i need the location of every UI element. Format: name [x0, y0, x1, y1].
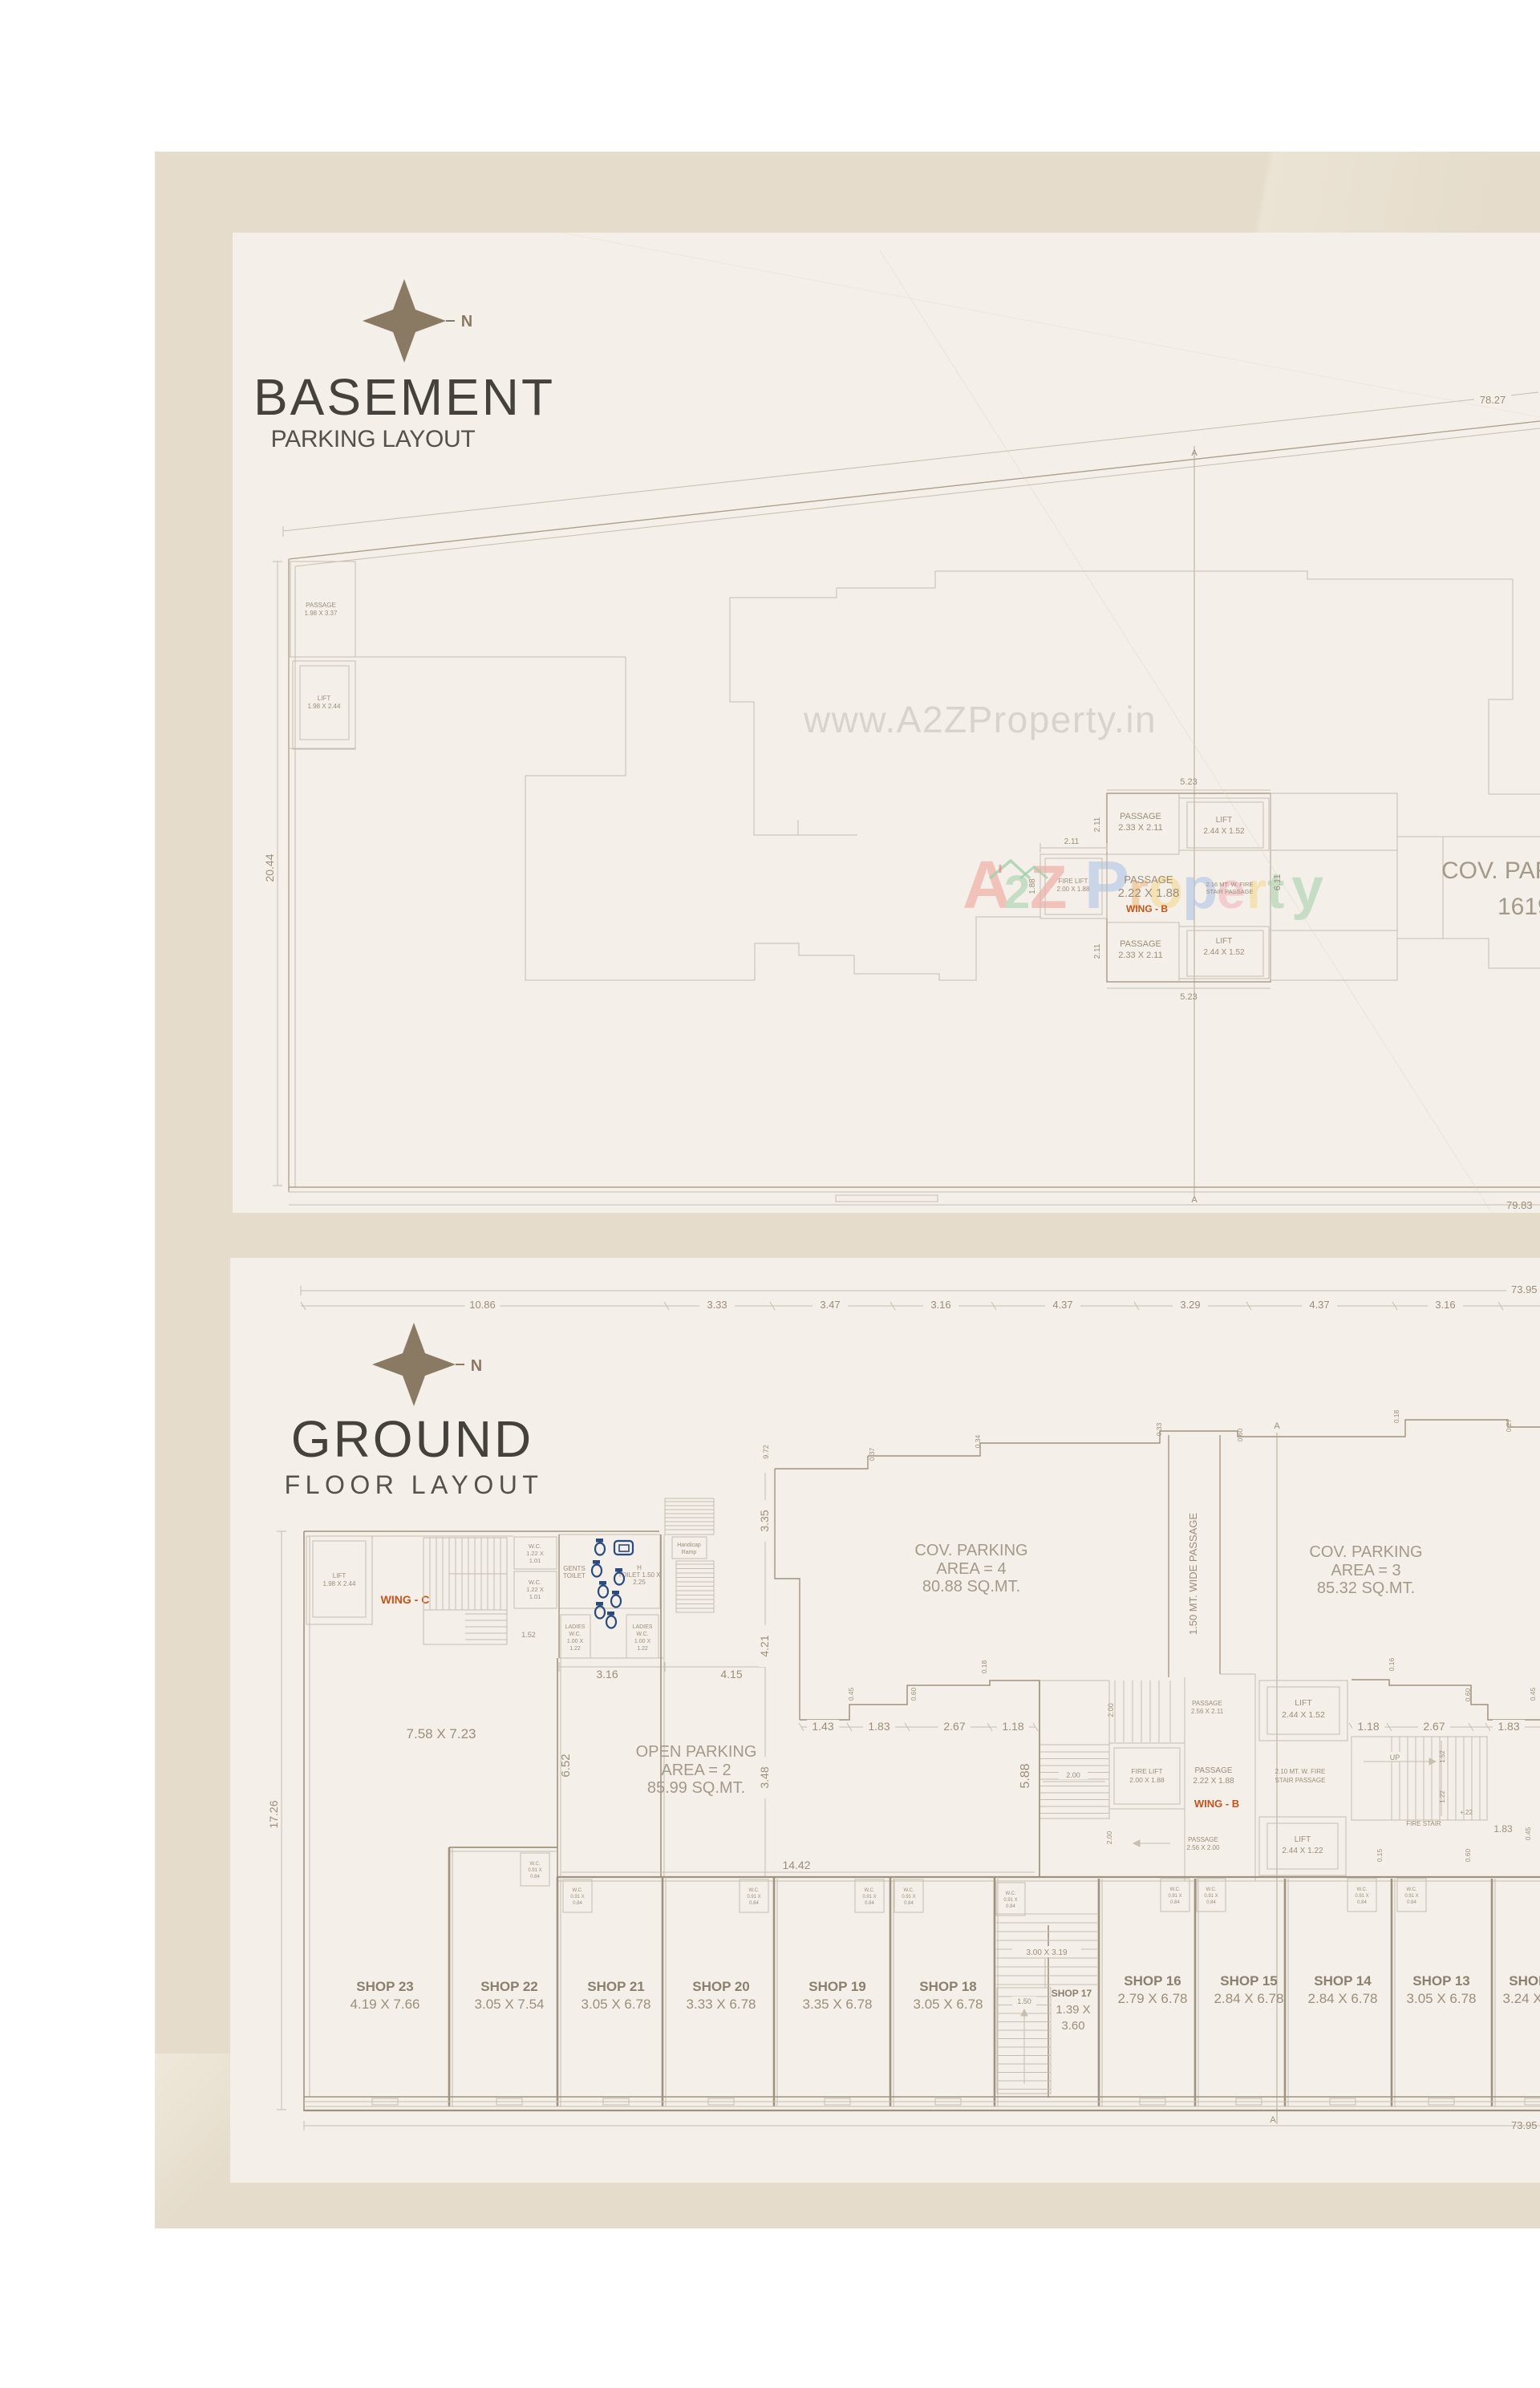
svg-text:1.18: 1.18 — [1002, 1720, 1023, 1733]
svg-text:2.84 X 6.78: 2.84 X 6.78 — [1214, 1991, 1284, 2006]
svg-text:1.98 X 2.44: 1.98 X 2.44 — [323, 1580, 356, 1587]
svg-text:2.00 X 1.88: 2.00 X 1.88 — [1129, 1776, 1165, 1784]
svg-text:2.22 X 1.88: 2.22 X 1.88 — [1118, 886, 1180, 900]
svg-text:UP: UP — [1390, 1753, 1400, 1762]
svg-text:0.91 X: 0.91 X — [1355, 1894, 1368, 1899]
svg-text:0.60: 0.60 — [1464, 1848, 1472, 1862]
svg-text:80.88 SQ.MT.: 80.88 SQ.MT. — [922, 1578, 1020, 1595]
svg-text:2.25: 2.25 — [633, 1579, 646, 1586]
svg-text:N: N — [461, 313, 472, 330]
svg-text:0.91 X: 0.91 X — [902, 1895, 915, 1899]
svg-text:3.35: 3.35 — [758, 1510, 771, 1531]
svg-text:LIFT: LIFT — [1216, 816, 1233, 825]
svg-text:W.C.: W.C. — [1170, 1887, 1181, 1892]
svg-text:3.29: 3.29 — [1180, 1299, 1200, 1311]
svg-text:FIRE LIFT: FIRE LIFT — [1059, 878, 1088, 885]
svg-text:LIFT: LIFT — [333, 1572, 346, 1579]
svg-text:WING - B: WING - B — [1194, 1798, 1239, 1810]
svg-text:2.44 X 1.52: 2.44 X 1.52 — [1203, 827, 1245, 836]
svg-text:0.84: 0.84 — [573, 1901, 582, 1906]
svg-text:STAIR PASSAGE: STAIR PASSAGE — [1275, 1777, 1326, 1784]
svg-text:3.33: 3.33 — [707, 1299, 727, 1311]
svg-text:1.43: 1.43 — [812, 1720, 833, 1733]
svg-text:A: A — [1270, 2115, 1276, 2125]
svg-text:1.22: 1.22 — [637, 1646, 648, 1652]
svg-text:73.95: 73.95 — [1511, 1283, 1538, 1295]
svg-text:0.84: 0.84 — [904, 1901, 914, 1906]
svg-text:W.C.: W.C. — [865, 1888, 875, 1893]
svg-text:2.00 X 1.88: 2.00 X 1.88 — [1057, 886, 1090, 893]
svg-text:0.91 X: 0.91 X — [862, 1895, 876, 1899]
svg-text:SHOP 12: SHOP 12 — [1509, 1973, 1540, 1989]
svg-text:SHOP 18: SHOP 18 — [919, 1979, 977, 1994]
svg-text:1.83: 1.83 — [1497, 1720, 1519, 1733]
svg-text:1.01: 1.01 — [529, 1557, 541, 1564]
svg-text:W.C.: W.C. — [529, 1543, 541, 1550]
svg-text:0.18: 0.18 — [1392, 1409, 1400, 1423]
svg-text:5.88: 5.88 — [1019, 1763, 1032, 1788]
svg-text:2.11: 2.11 — [1093, 943, 1102, 959]
svg-text:1.98 X 2.44: 1.98 X 2.44 — [308, 703, 341, 710]
svg-text:1.83: 1.83 — [868, 1720, 890, 1733]
svg-text:0.60: 0.60 — [910, 1687, 918, 1701]
svg-text:LADIES: LADIES — [633, 1624, 653, 1630]
svg-text:0.84: 0.84 — [1407, 1900, 1416, 1905]
svg-text:N: N — [471, 1357, 482, 1375]
svg-text:SHOP 21: SHOP 21 — [587, 1979, 645, 1994]
svg-text:2.56 X 2.00: 2.56 X 2.00 — [1187, 1844, 1220, 1851]
svg-text:5.23: 5.23 — [1180, 777, 1197, 787]
svg-text:4.21: 4.21 — [758, 1635, 771, 1656]
svg-text:W.C.: W.C. — [1206, 1887, 1217, 1892]
svg-text:3.33 X 6.78: 3.33 X 6.78 — [687, 1997, 756, 2012]
svg-text:4.37: 4.37 — [1052, 1299, 1072, 1311]
svg-text:PARKING LAYOUT: PARKING LAYOUT — [271, 426, 476, 452]
svg-text:AREA = 2: AREA = 2 — [661, 1762, 731, 1779]
svg-text:10.86: 10.86 — [469, 1299, 496, 1311]
svg-text:1.01: 1.01 — [529, 1593, 541, 1600]
svg-text:2.00: 2.00 — [1066, 1771, 1080, 1779]
svg-text:LADIES: LADIES — [565, 1624, 586, 1630]
svg-text:3.00 X 3.19: 3.00 X 3.19 — [1026, 1948, 1068, 1957]
svg-text:1.52: 1.52 — [521, 1631, 536, 1639]
svg-text:2.67: 2.67 — [943, 1720, 965, 1733]
svg-text:+.22: +.22 — [1460, 1809, 1473, 1816]
svg-text:W.C.: W.C. — [573, 1888, 583, 1893]
svg-text:W.C.: W.C. — [1357, 1887, 1368, 1892]
svg-text:SHOP 20: SHOP 20 — [692, 1979, 750, 1994]
svg-text:2.22 X 1.88: 2.22 X 1.88 — [1193, 1777, 1234, 1786]
svg-text:2.00: 2.00 — [1105, 1831, 1113, 1844]
svg-text:73.95: 73.95 — [1511, 2119, 1538, 2131]
svg-text:W.C.: W.C. — [749, 1888, 760, 1893]
svg-text:OPEN PARKING: OPEN PARKING — [636, 1743, 757, 1761]
svg-text:0.84: 0.84 — [530, 1875, 540, 1879]
svg-text:SHOP 13: SHOP 13 — [1412, 1973, 1470, 1989]
svg-text:0.15: 0.15 — [1376, 1848, 1384, 1862]
svg-text:SHOP 23: SHOP 23 — [356, 1979, 414, 1994]
svg-text:4.15: 4.15 — [720, 1668, 742, 1681]
svg-text:1.00 X: 1.00 X — [567, 1639, 584, 1644]
svg-text:COV. PARKING: COV. PARKING — [1441, 857, 1540, 884]
svg-text:LIFT: LIFT — [1295, 1698, 1312, 1708]
svg-text:TOILET: TOILET — [563, 1572, 586, 1579]
svg-text:7.58 X 7.23: 7.58 X 7.23 — [407, 1726, 476, 1741]
svg-text:5.23: 5.23 — [1180, 992, 1197, 1002]
svg-text:0.84: 0.84 — [1006, 1904, 1015, 1909]
svg-text:GROUND: GROUND — [291, 1410, 533, 1468]
svg-text:3.60: 3.60 — [1061, 2019, 1084, 2033]
svg-text:STAIR PASSAGE: STAIR PASSAGE — [1206, 888, 1254, 895]
svg-text:COV. PARKING: COV. PARKING — [1309, 1543, 1422, 1561]
svg-text:2.44 X 1.52: 2.44 X 1.52 — [1282, 1710, 1325, 1720]
svg-text:17.26: 17.26 — [267, 1800, 280, 1828]
svg-text:0.45: 0.45 — [1524, 1826, 1532, 1840]
svg-text:FLOOR LAYOUT: FLOOR LAYOUT — [285, 1470, 544, 1499]
svg-text:0.84: 0.84 — [749, 1901, 759, 1906]
svg-text:3.24 X 6.78: 3.24 X 6.78 — [1503, 1991, 1540, 2006]
svg-text:0.84: 0.84 — [865, 1901, 874, 1906]
svg-text:1.88: 1.88 — [1028, 878, 1037, 894]
svg-text:W.C.: W.C. — [530, 1862, 541, 1867]
svg-text:1.22 X: 1.22 X — [526, 1586, 544, 1593]
svg-text:AREA = 3: AREA = 3 — [1331, 1562, 1400, 1579]
svg-text:6.52: 6.52 — [559, 1753, 573, 1777]
svg-text:0.91 X: 0.91 X — [747, 1895, 760, 1899]
svg-text:PASSAGE: PASSAGE — [306, 602, 336, 609]
svg-text:SHOP 15: SHOP 15 — [1220, 1973, 1278, 1989]
svg-text:4.19 X 7.66: 4.19 X 7.66 — [351, 1997, 420, 2012]
svg-text:A: A — [1274, 1421, 1280, 1431]
svg-text:0.91 X: 0.91 X — [528, 1868, 541, 1873]
svg-text:1.22: 1.22 — [1439, 1790, 1446, 1803]
svg-text:Ramp: Ramp — [682, 1550, 697, 1555]
svg-text:2.84 X 6.78: 2.84 X 6.78 — [1308, 1991, 1378, 2006]
svg-text:2.11: 2.11 — [1093, 817, 1102, 832]
svg-text:1.18: 1.18 — [1357, 1720, 1379, 1733]
svg-text:0.91 X: 0.91 X — [1404, 1894, 1418, 1899]
svg-text:2.00: 2.00 — [1107, 1703, 1115, 1717]
svg-text:3.05 X 7.54: 3.05 X 7.54 — [475, 1997, 545, 2012]
svg-text:2.79 X 6.78: 2.79 X 6.78 — [1118, 1991, 1188, 2006]
svg-text:SHOP 17: SHOP 17 — [1052, 1988, 1092, 1999]
svg-text:14.42: 14.42 — [782, 1859, 810, 1871]
svg-text:0.91 X: 0.91 X — [1003, 1898, 1017, 1903]
svg-text:1.00 X: 1.00 X — [634, 1639, 651, 1644]
svg-text:0.91 X: 0.91 X — [1204, 1894, 1218, 1899]
svg-text:3.05 X 6.78: 3.05 X 6.78 — [582, 1997, 651, 2012]
svg-text:3.05 X 6.78: 3.05 X 6.78 — [914, 1997, 983, 2012]
svg-text:LIFT: LIFT — [318, 695, 331, 702]
svg-text:GENTS: GENTS — [563, 1565, 586, 1572]
svg-text:W.C.: W.C. — [636, 1632, 648, 1637]
svg-text:1.22: 1.22 — [569, 1646, 581, 1652]
svg-text:SHOP 19: SHOP 19 — [808, 1979, 866, 1994]
svg-text:W.C.: W.C. — [904, 1888, 914, 1893]
svg-text:LIFT: LIFT — [1295, 1835, 1311, 1844]
svg-text:0.84: 0.84 — [1357, 1900, 1367, 1905]
svg-text:W.C.: W.C. — [569, 1632, 581, 1637]
svg-text:0.84: 0.84 — [1170, 1900, 1180, 1905]
svg-text:78.27: 78.27 — [1480, 394, 1506, 406]
svg-text:0.45: 0.45 — [847, 1687, 855, 1701]
svg-text:1.83: 1.83 — [1493, 1823, 1513, 1835]
svg-text:Handicap: Handicap — [677, 1543, 701, 1548]
svg-text:20.44: 20.44 — [263, 853, 276, 882]
svg-text:2.44 X 1.52: 2.44 X 1.52 — [1203, 948, 1245, 957]
svg-text:3.35 X 6.78: 3.35 X 6.78 — [803, 1997, 873, 2012]
svg-text:2.33 X 2.11: 2.33 X 2.11 — [1118, 951, 1162, 960]
svg-text:1619.77 SQ.MT.: 1619.77 SQ.MT. — [1497, 894, 1540, 920]
svg-text:2.44 X 1.22: 2.44 X 1.22 — [1282, 1847, 1323, 1855]
svg-text:W.C.: W.C. — [1006, 1891, 1016, 1896]
svg-text:0.16: 0.16 — [1388, 1657, 1396, 1671]
svg-text:9.72: 9.72 — [762, 1445, 770, 1459]
svg-text:PASSAGE: PASSAGE — [1120, 939, 1161, 949]
svg-text:0.91 X: 0.91 X — [1168, 1894, 1181, 1899]
svg-text:3.16: 3.16 — [596, 1668, 618, 1681]
svg-text:LIFT: LIFT — [1216, 937, 1233, 946]
svg-text:SHOP 16: SHOP 16 — [1124, 1973, 1181, 1989]
svg-text:0.27: 0.27 — [1505, 1418, 1513, 1432]
svg-text:79.83: 79.83 — [1506, 1199, 1533, 1211]
svg-text:W.C.: W.C. — [529, 1579, 541, 1586]
svg-text:2.67: 2.67 — [1423, 1720, 1445, 1733]
svg-text:0.60: 0.60 — [1464, 1688, 1472, 1701]
svg-text:2.10 MT. W. FIRE: 2.10 MT. W. FIRE — [1275, 1768, 1326, 1775]
svg-text:3.16: 3.16 — [1435, 1299, 1455, 1311]
svg-text:0.37: 0.37 — [868, 1447, 876, 1461]
svg-text:SHOP 22: SHOP 22 — [480, 1979, 538, 1994]
svg-text:2.11: 2.11 — [1064, 837, 1080, 846]
svg-text:85.32 SQ.MT.: 85.32 SQ.MT. — [1317, 1579, 1415, 1597]
svg-text:1.22 X: 1.22 X — [526, 1550, 544, 1557]
svg-text:3.05 X 6.78: 3.05 X 6.78 — [1407, 1991, 1477, 2006]
svg-text:3.47: 3.47 — [820, 1299, 840, 1311]
svg-text:PASSAGE: PASSAGE — [1188, 1836, 1218, 1843]
svg-text:W.C.: W.C. — [1407, 1887, 1417, 1892]
svg-text:3.48: 3.48 — [758, 1766, 771, 1788]
svg-text:BASEMENT: BASEMENT — [253, 368, 555, 426]
svg-text:0.84: 0.84 — [1206, 1900, 1216, 1905]
svg-text:PASSAGE: PASSAGE — [1192, 1700, 1222, 1707]
svg-text:0.91 X: 0.91 X — [570, 1895, 584, 1899]
svg-text:AREA = 4: AREA = 4 — [936, 1560, 1006, 1578]
svg-text:2.16 MT. W. FIRE: 2.16 MT. W. FIRE — [1206, 881, 1254, 888]
svg-text:1.98 X 3.37: 1.98 X 3.37 — [305, 610, 338, 617]
svg-text:PASSAGE: PASSAGE — [1120, 812, 1161, 821]
svg-text:1.52: 1.52 — [1439, 1750, 1446, 1763]
svg-text:1.50 MT. WIDE PASSAGE: 1.50 MT. WIDE PASSAGE — [1187, 1513, 1199, 1636]
svg-text:2.56 X 2.11: 2.56 X 2.11 — [1191, 1708, 1224, 1715]
svg-text:3.16: 3.16 — [930, 1299, 950, 1311]
svg-text:0.33: 0.33 — [1155, 1422, 1163, 1436]
svg-text:PASSAGE: PASSAGE — [1194, 1766, 1232, 1775]
svg-text:85.99 SQ.MT.: 85.99 SQ.MT. — [647, 1779, 745, 1797]
svg-text:0.45: 0.45 — [1529, 1687, 1537, 1701]
svg-text:COV. PARKING: COV. PARKING — [914, 1542, 1027, 1559]
svg-text:0.34: 0.34 — [974, 1434, 982, 1448]
svg-text:WING - B: WING - B — [1126, 903, 1168, 914]
svg-text:2.33 X 2.11: 2.33 X 2.11 — [1118, 823, 1162, 833]
svg-text:0.18: 0.18 — [980, 1660, 988, 1673]
svg-text:4.37: 4.37 — [1309, 1299, 1329, 1311]
svg-text:A: A — [1191, 448, 1198, 458]
svg-text:WING - C: WING - C — [381, 1593, 430, 1606]
svg-text:SHOP 14: SHOP 14 — [1314, 1973, 1372, 1989]
svg-text:0.60: 0.60 — [1236, 1428, 1244, 1441]
svg-text:FIRE STAIR: FIRE STAIR — [1406, 1820, 1441, 1827]
svg-text:H: H — [637, 1564, 642, 1571]
svg-text:PASSAGE: PASSAGE — [1124, 874, 1173, 886]
svg-text:www.A2ZProperty.in: www.A2ZProperty.in — [803, 699, 1157, 740]
svg-text:1.50: 1.50 — [1017, 1997, 1031, 2005]
svg-text:FIRE LIFT: FIRE LIFT — [1131, 1767, 1162, 1775]
svg-text:1.39 X: 1.39 X — [1056, 2003, 1090, 2017]
svg-text:y: y — [1291, 857, 1323, 921]
